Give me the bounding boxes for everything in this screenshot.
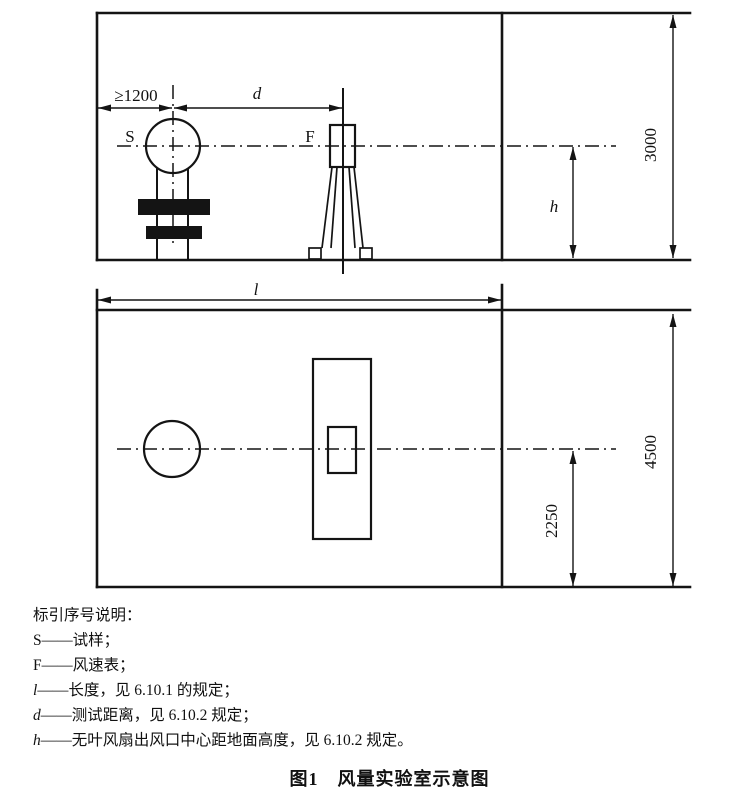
legend: 标引序号说明： S——试样； F——风速表； l——长度，见 6.10.1 的规… — [33, 603, 413, 753]
plan-view: l 2250 4500 — [97, 280, 690, 587]
legend-item-s: S——试样； — [33, 628, 413, 653]
legend-title: 标引序号说明： — [33, 603, 413, 628]
dim-label-d: d — [253, 84, 262, 103]
dim-label-2250: 2250 — [542, 504, 561, 538]
legend-item-l: l——长度，见 6.10.1 的规定； — [33, 678, 413, 703]
sample-fan-front — [138, 119, 210, 259]
dimension-l: l — [98, 280, 501, 304]
tripod-foot-right — [360, 248, 372, 259]
legend-symbol: h — [33, 732, 41, 749]
figure-page: ≥1200 d h 3000 — [0, 0, 733, 796]
dim-label-3000: 3000 — [641, 128, 660, 162]
anemometer-tripod — [309, 88, 372, 274]
dim-label-1200: ≥1200 — [114, 86, 157, 105]
dimension-3000: 3000 — [641, 15, 677, 258]
dim-label-4500: 4500 — [641, 435, 660, 469]
tripod-foot-left — [309, 248, 321, 259]
dim-label-h: h — [550, 197, 559, 216]
dimension-1200: ≥1200 — [98, 86, 172, 112]
legend-item-h: h——无叶风扇出风口中心距地面高度，见 6.10.2 规定。 — [33, 728, 413, 753]
dimension-d: d — [174, 84, 342, 112]
legend-desc: ——长度，见 6.10.1 的规定； — [37, 682, 239, 699]
legend-item-f: F——风速表； — [33, 653, 413, 678]
dimension-2250: 2250 — [542, 451, 577, 586]
dimension-4500: 4500 — [641, 314, 677, 586]
figure-caption: 图1 风量实验室示意图 — [0, 765, 733, 791]
legend-desc: ——测试距离，见 6.10.2 规定； — [41, 707, 258, 724]
figure-diagram: ≥1200 d h 3000 — [0, 0, 733, 600]
legend-symbol: F — [33, 657, 42, 674]
dim-label-l: l — [254, 280, 259, 299]
legend-desc: ——风速表； — [42, 657, 135, 674]
sample-label-s: S — [125, 127, 134, 146]
dimension-h: h — [550, 147, 577, 258]
legend-desc: ——试样； — [42, 632, 120, 649]
legend-item-d: d——测试距离，见 6.10.2 规定； — [33, 703, 413, 728]
legend-symbol: d — [33, 707, 41, 724]
legend-symbol: S — [33, 632, 42, 649]
legend-desc: ——无叶风扇出风口中心距地面高度，见 6.10.2 规定。 — [41, 732, 413, 749]
elevation-view: ≥1200 d h 3000 — [97, 13, 690, 274]
anemometer-label-f: F — [305, 127, 314, 146]
